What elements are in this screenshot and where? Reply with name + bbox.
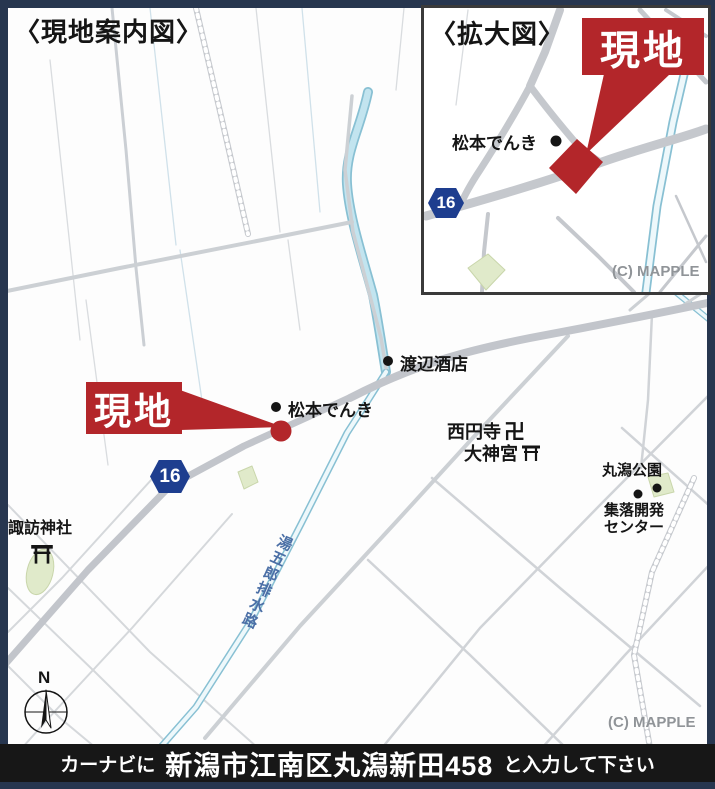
compass-north-label: N xyxy=(38,668,50,688)
inset-green-area xyxy=(468,254,505,290)
carnavi-suffix: と入力して下さい xyxy=(503,750,654,777)
label-watanabe: 渡辺酒店 xyxy=(400,350,468,375)
torii-icon xyxy=(30,543,54,565)
site-flag-inset: 現地 xyxy=(582,18,704,75)
label-marugata-park: 丸潟公園 xyxy=(602,459,662,480)
credit-mapple-main: (C) MAPPLE xyxy=(608,714,696,731)
map-screenshot-frame: 〈現地案内図〉 〈拡大図〉 現地 現地 16 16 渡辺酒店 松本でんき 西円寺… xyxy=(0,0,715,789)
site-pointer-arrow xyxy=(180,390,283,430)
ditch-lines xyxy=(150,8,320,428)
label-matsumoto-inset: 松本でんき xyxy=(452,129,537,154)
compass-icon xyxy=(25,690,67,733)
main-map-title: 〈現地案内図〉 xyxy=(14,12,203,49)
label-suwa-shrine: 諏訪神社 xyxy=(8,514,72,538)
center-dot xyxy=(634,490,643,499)
park-dot xyxy=(653,484,662,493)
matsumoto-dot xyxy=(271,402,281,412)
carnavi-prefix: カーナビに xyxy=(60,750,155,777)
torii-icon xyxy=(521,444,541,462)
label-matsumoto-main: 松本でんき xyxy=(288,396,373,421)
carnavi-instruction-bar: カーナビに 新潟市江南区丸潟新田458 と入力して下さい xyxy=(0,744,715,782)
inset-site-building xyxy=(549,139,603,194)
credit-mapple-inset: (C) MAPPLE xyxy=(612,263,700,280)
green-areas xyxy=(22,466,674,597)
label-daijingu: 大神宮 xyxy=(464,440,541,466)
watanabe-dot xyxy=(383,356,393,366)
hatched-band-north xyxy=(196,8,248,234)
site-dot xyxy=(271,421,292,442)
inset-matsumoto-dot xyxy=(551,136,562,147)
label-shuraku-center: 集落開発 センター xyxy=(604,503,664,537)
carnavi-address: 新潟市江南区丸潟新田458 xyxy=(165,744,493,783)
site-flag-main: 現地 xyxy=(86,382,182,434)
inset-map-title: 〈拡大図〉 xyxy=(430,14,565,51)
